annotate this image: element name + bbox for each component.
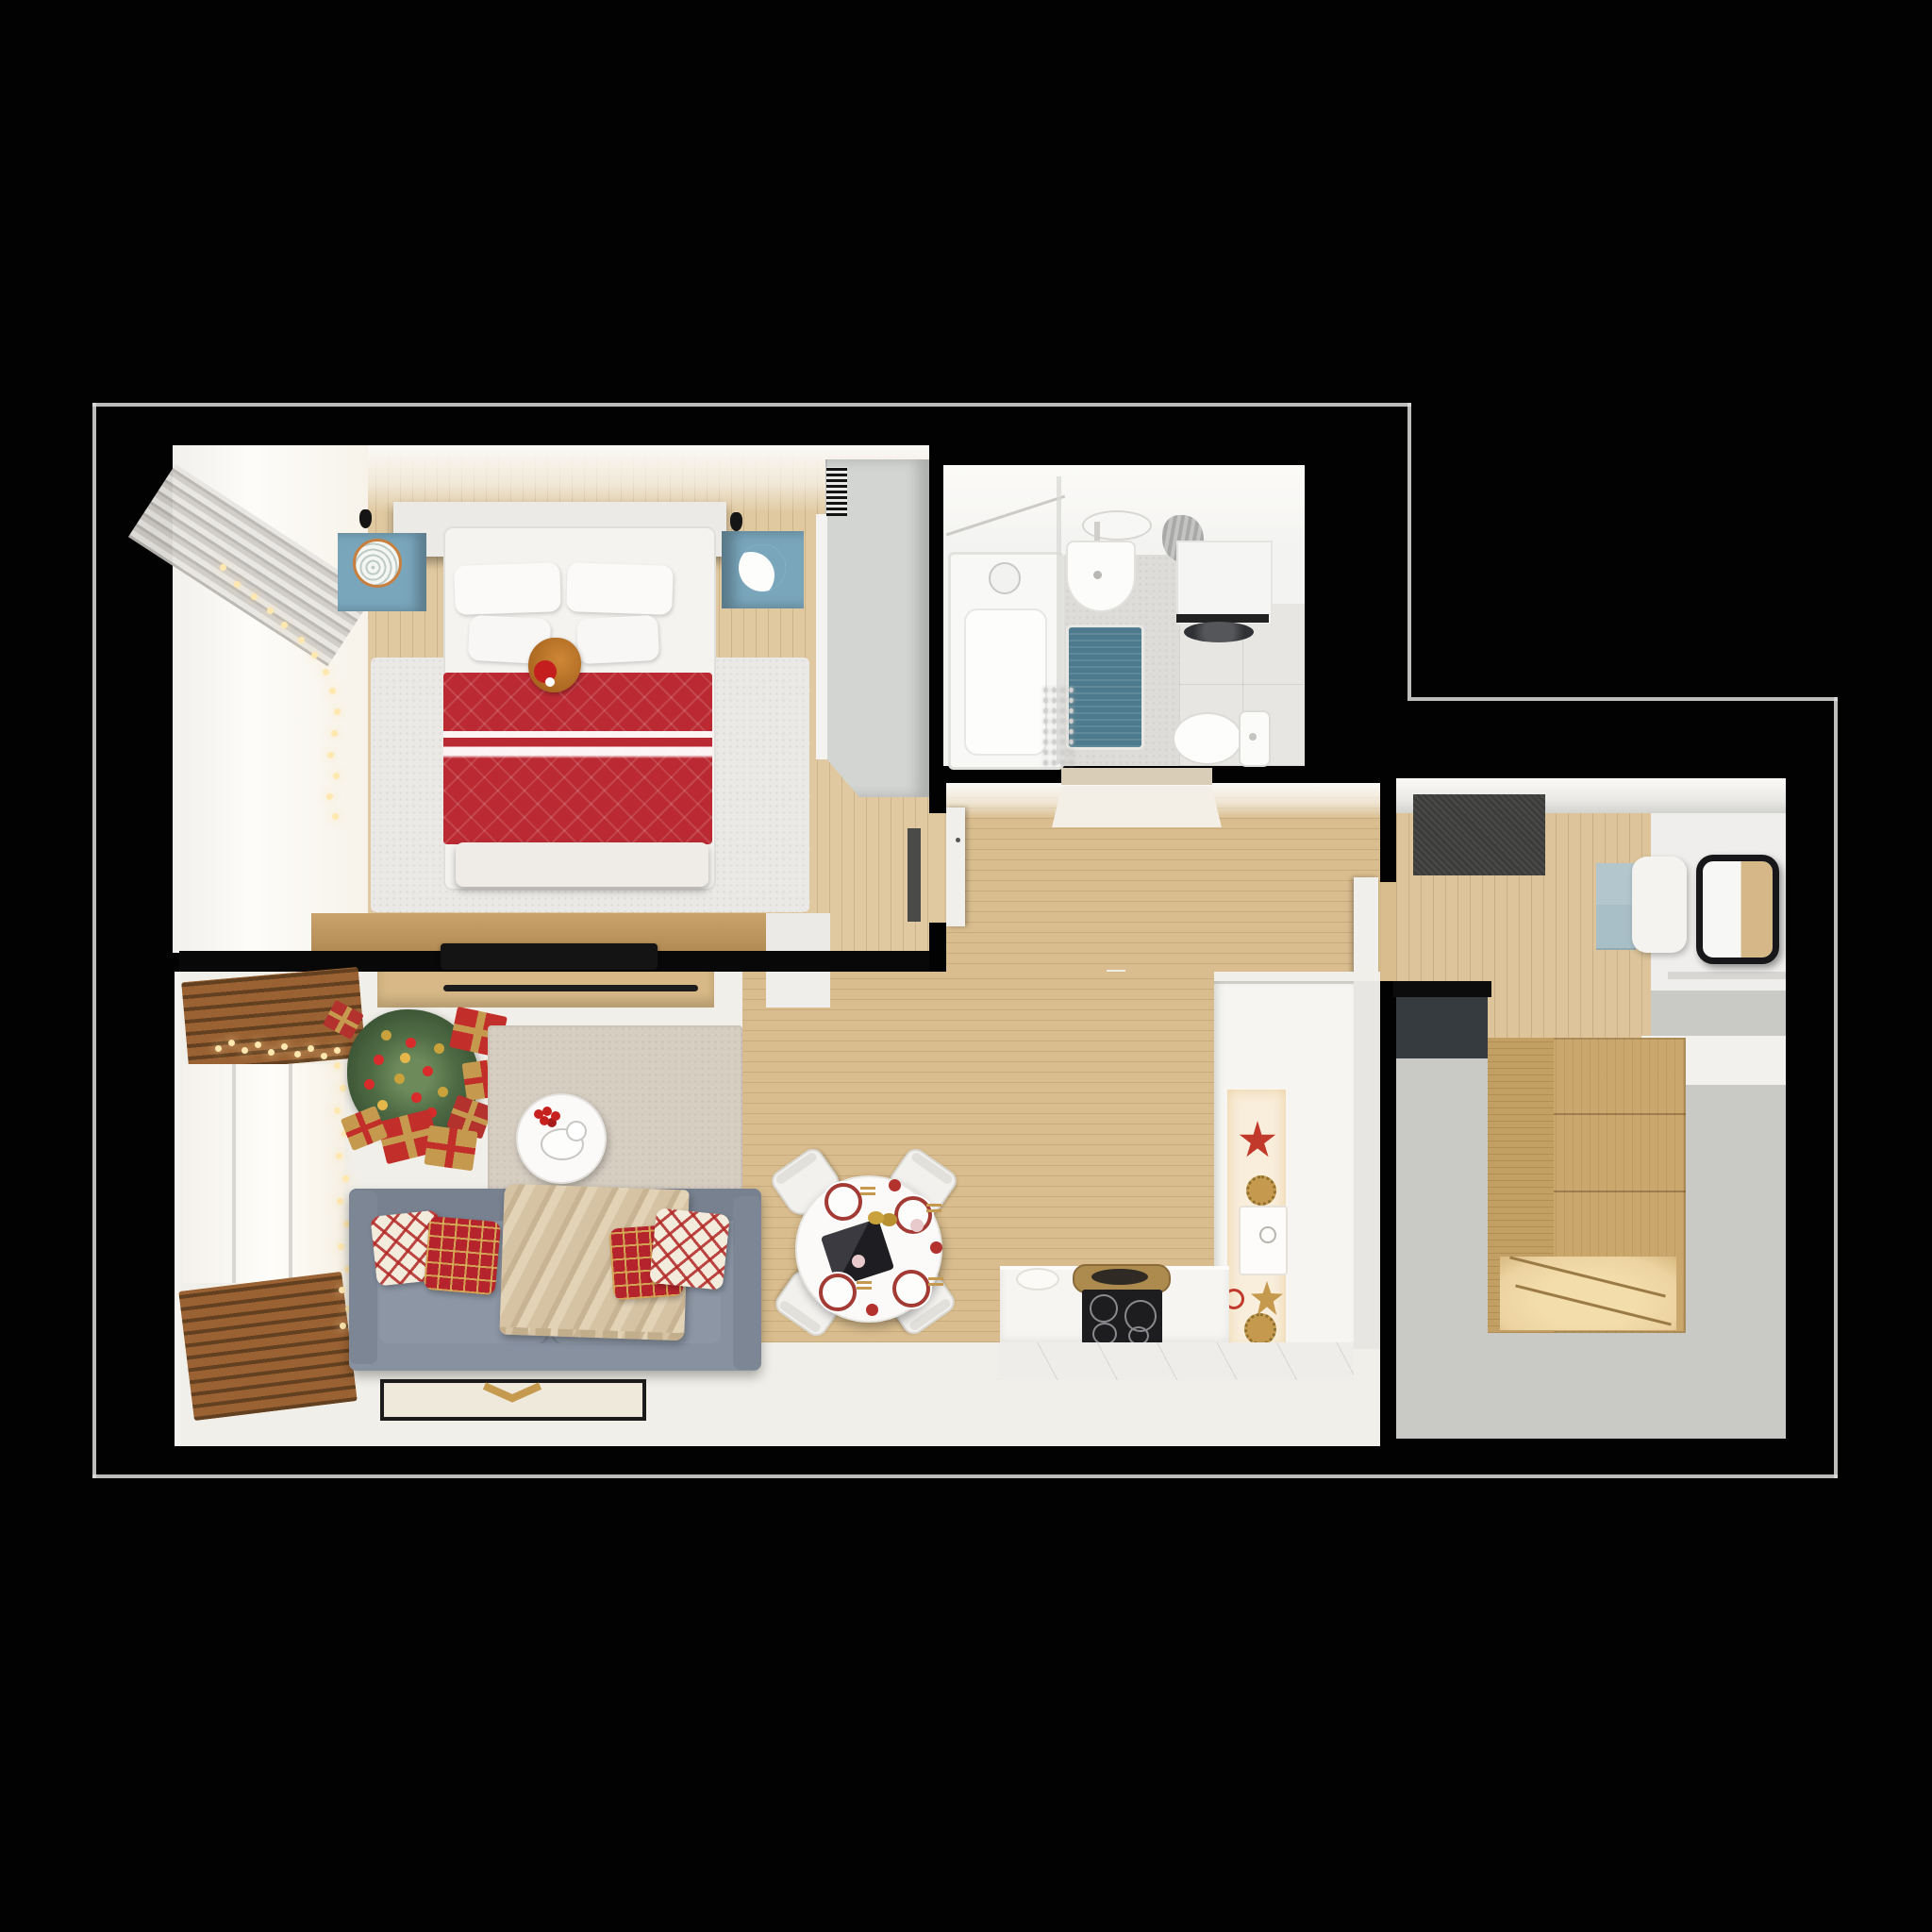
bed-pillow xyxy=(576,615,659,664)
tinsel-garland xyxy=(1041,685,1077,768)
outline-right-upper xyxy=(1407,403,1411,697)
berry-decor xyxy=(534,1109,543,1119)
recess-faucet-icon xyxy=(1259,1226,1276,1243)
tea-cup xyxy=(566,1121,587,1141)
wall-shelf-line xyxy=(1668,972,1786,979)
place-setting-plate xyxy=(892,1270,930,1307)
white-pouf xyxy=(1632,857,1687,953)
entry-door-leaf xyxy=(1354,877,1378,981)
ceiling-spotlight xyxy=(730,512,742,531)
santa-hat-pom xyxy=(545,677,555,687)
sofa-armrest-left xyxy=(349,1191,377,1364)
alcove-seam xyxy=(1554,1113,1686,1115)
place-setting-plate xyxy=(894,1196,932,1234)
living-string-lights-h xyxy=(215,1045,222,1052)
outline-right-lower xyxy=(1834,697,1838,1478)
bed-pillow xyxy=(454,562,561,615)
toilet-bowl xyxy=(1173,712,1242,765)
charcoal-panel xyxy=(1396,997,1488,1058)
red-cup xyxy=(889,1179,901,1191)
gift-box xyxy=(424,1125,477,1172)
place-setting-plate xyxy=(824,1183,862,1221)
floor-plan-render xyxy=(0,0,1932,1932)
gold-spiky-ornament xyxy=(1246,1175,1276,1206)
outline-bottom xyxy=(92,1474,1838,1478)
bedroom-door-leaf xyxy=(946,808,965,926)
wall-tv xyxy=(441,943,658,970)
blue-console xyxy=(1596,863,1636,950)
bathtub-basin xyxy=(964,608,1047,756)
pink-napkin xyxy=(852,1255,865,1268)
sofa-pillow-red-white xyxy=(649,1207,730,1291)
ceiling-spotlight xyxy=(359,509,372,528)
window-mullion xyxy=(289,1064,292,1283)
radiator-grille xyxy=(826,467,847,516)
kitchen-wall-face xyxy=(1354,981,1380,1349)
wardrobe-door-rail xyxy=(816,514,827,759)
tree-ornaments xyxy=(406,1038,416,1048)
living-window xyxy=(182,1064,344,1283)
wood-blinds-lower xyxy=(178,1272,358,1421)
gold-spiky-ornament xyxy=(1244,1313,1276,1345)
sofa-armrest-right xyxy=(733,1196,761,1370)
living-string-lights-v xyxy=(334,1062,341,1069)
entry-doorway-threshold xyxy=(1378,882,1397,981)
tub-faucet xyxy=(989,562,1021,594)
basin-drain xyxy=(1093,571,1102,579)
counter-sink xyxy=(1016,1268,1059,1291)
oval-mirror xyxy=(1082,510,1152,541)
sofa-pillow-red-gold xyxy=(424,1216,502,1295)
white-cabinet xyxy=(766,972,830,1008)
bedroom-string-lights xyxy=(220,564,226,571)
bathroom-door-open xyxy=(1052,786,1222,827)
hob-burner xyxy=(1090,1294,1118,1323)
outline-left xyxy=(92,403,96,1478)
tall-panel xyxy=(908,828,921,922)
dresser-handle-groove xyxy=(443,985,698,991)
outline-top xyxy=(92,403,1411,407)
gold-buns xyxy=(868,1211,884,1224)
alcove-seam xyxy=(1554,1191,1686,1192)
brass-pan-inner xyxy=(1091,1269,1148,1285)
wall-cabinet xyxy=(1176,541,1273,625)
charcoal-wall-line xyxy=(1393,981,1491,997)
kitchen-tile-floor xyxy=(997,1342,1354,1380)
place-setting-plate xyxy=(819,1274,857,1311)
living-window-edge xyxy=(175,972,180,1446)
window-mullion xyxy=(232,1064,236,1283)
bedroom-doorway-threshold xyxy=(929,813,946,923)
gold-cutlery xyxy=(860,1187,875,1190)
bathroom-doorway-threshold xyxy=(1061,768,1212,785)
red-blanket xyxy=(443,673,712,844)
teal-bath-mat xyxy=(1069,627,1141,747)
wall-mirror xyxy=(1696,855,1779,964)
washing-machine-door xyxy=(1184,622,1254,642)
console-white-cabinet-top xyxy=(766,913,830,953)
bed-pillow xyxy=(566,562,674,615)
moon-lamp xyxy=(739,544,786,591)
bed-footboard xyxy=(456,842,708,887)
charcoal-doormat xyxy=(1413,794,1545,875)
door-handle xyxy=(956,838,960,842)
rattan-plate-decor xyxy=(353,539,402,588)
toilet-flush-button xyxy=(1249,733,1257,741)
outline-step-top xyxy=(1407,697,1838,701)
